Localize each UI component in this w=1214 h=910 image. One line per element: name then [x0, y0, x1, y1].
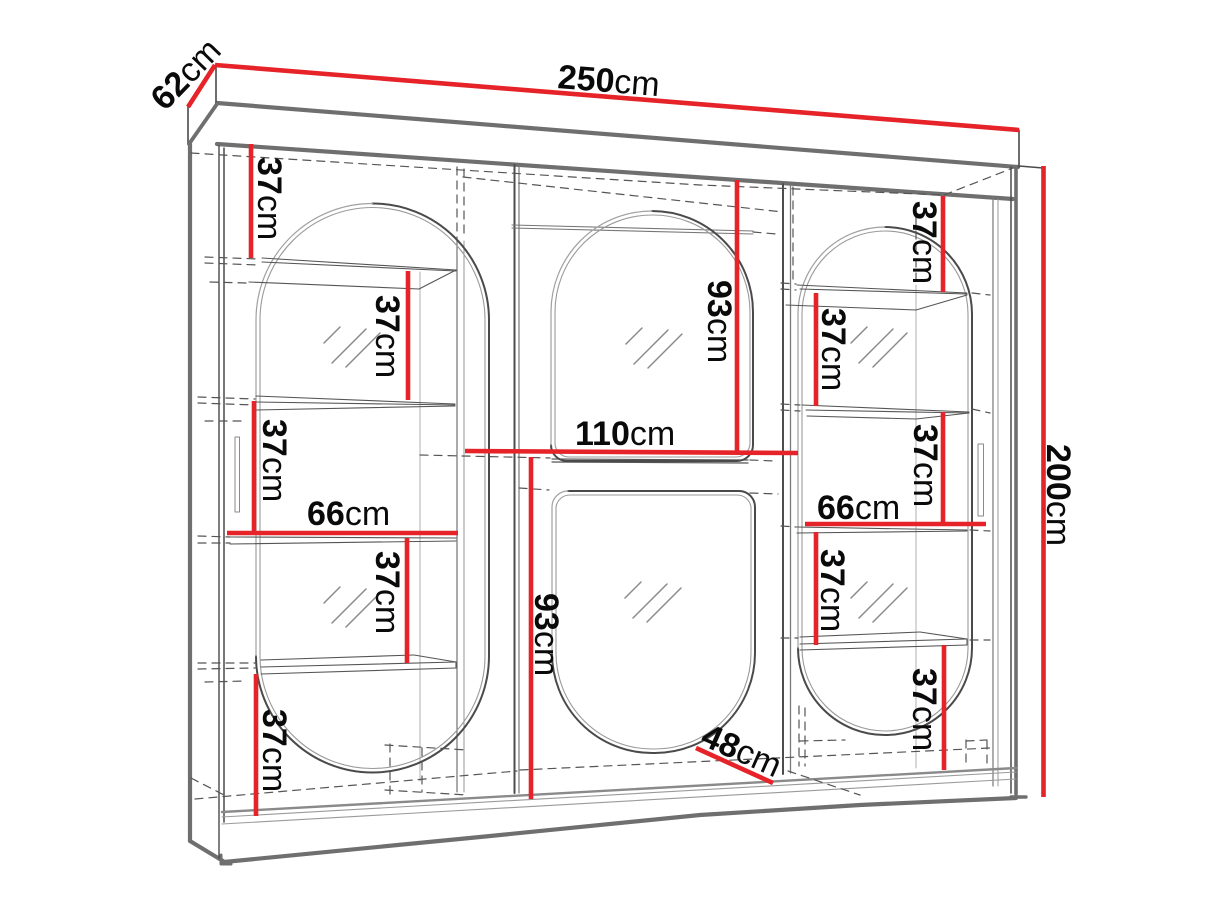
svg-text:37cm: 37cm	[906, 424, 944, 507]
svg-text:37cm: 37cm	[368, 551, 406, 634]
svg-text:110cm: 110cm	[575, 415, 675, 453]
svg-text:37cm: 37cm	[368, 295, 406, 378]
svg-text:66cm: 66cm	[307, 495, 390, 533]
svg-text:37cm: 37cm	[813, 549, 851, 632]
svg-text:37cm: 37cm	[905, 201, 943, 284]
svg-text:37cm: 37cm	[905, 668, 943, 751]
svg-text:37cm: 37cm	[250, 157, 288, 240]
svg-text:200cm: 200cm	[1039, 444, 1077, 546]
svg-text:93cm: 93cm	[700, 280, 738, 363]
svg-text:37cm: 37cm	[814, 308, 852, 391]
svg-text:66cm: 66cm	[817, 489, 900, 527]
svg-text:37cm: 37cm	[255, 709, 293, 792]
svg-text:93cm: 93cm	[527, 593, 565, 676]
svg-text:37cm: 37cm	[255, 419, 293, 502]
